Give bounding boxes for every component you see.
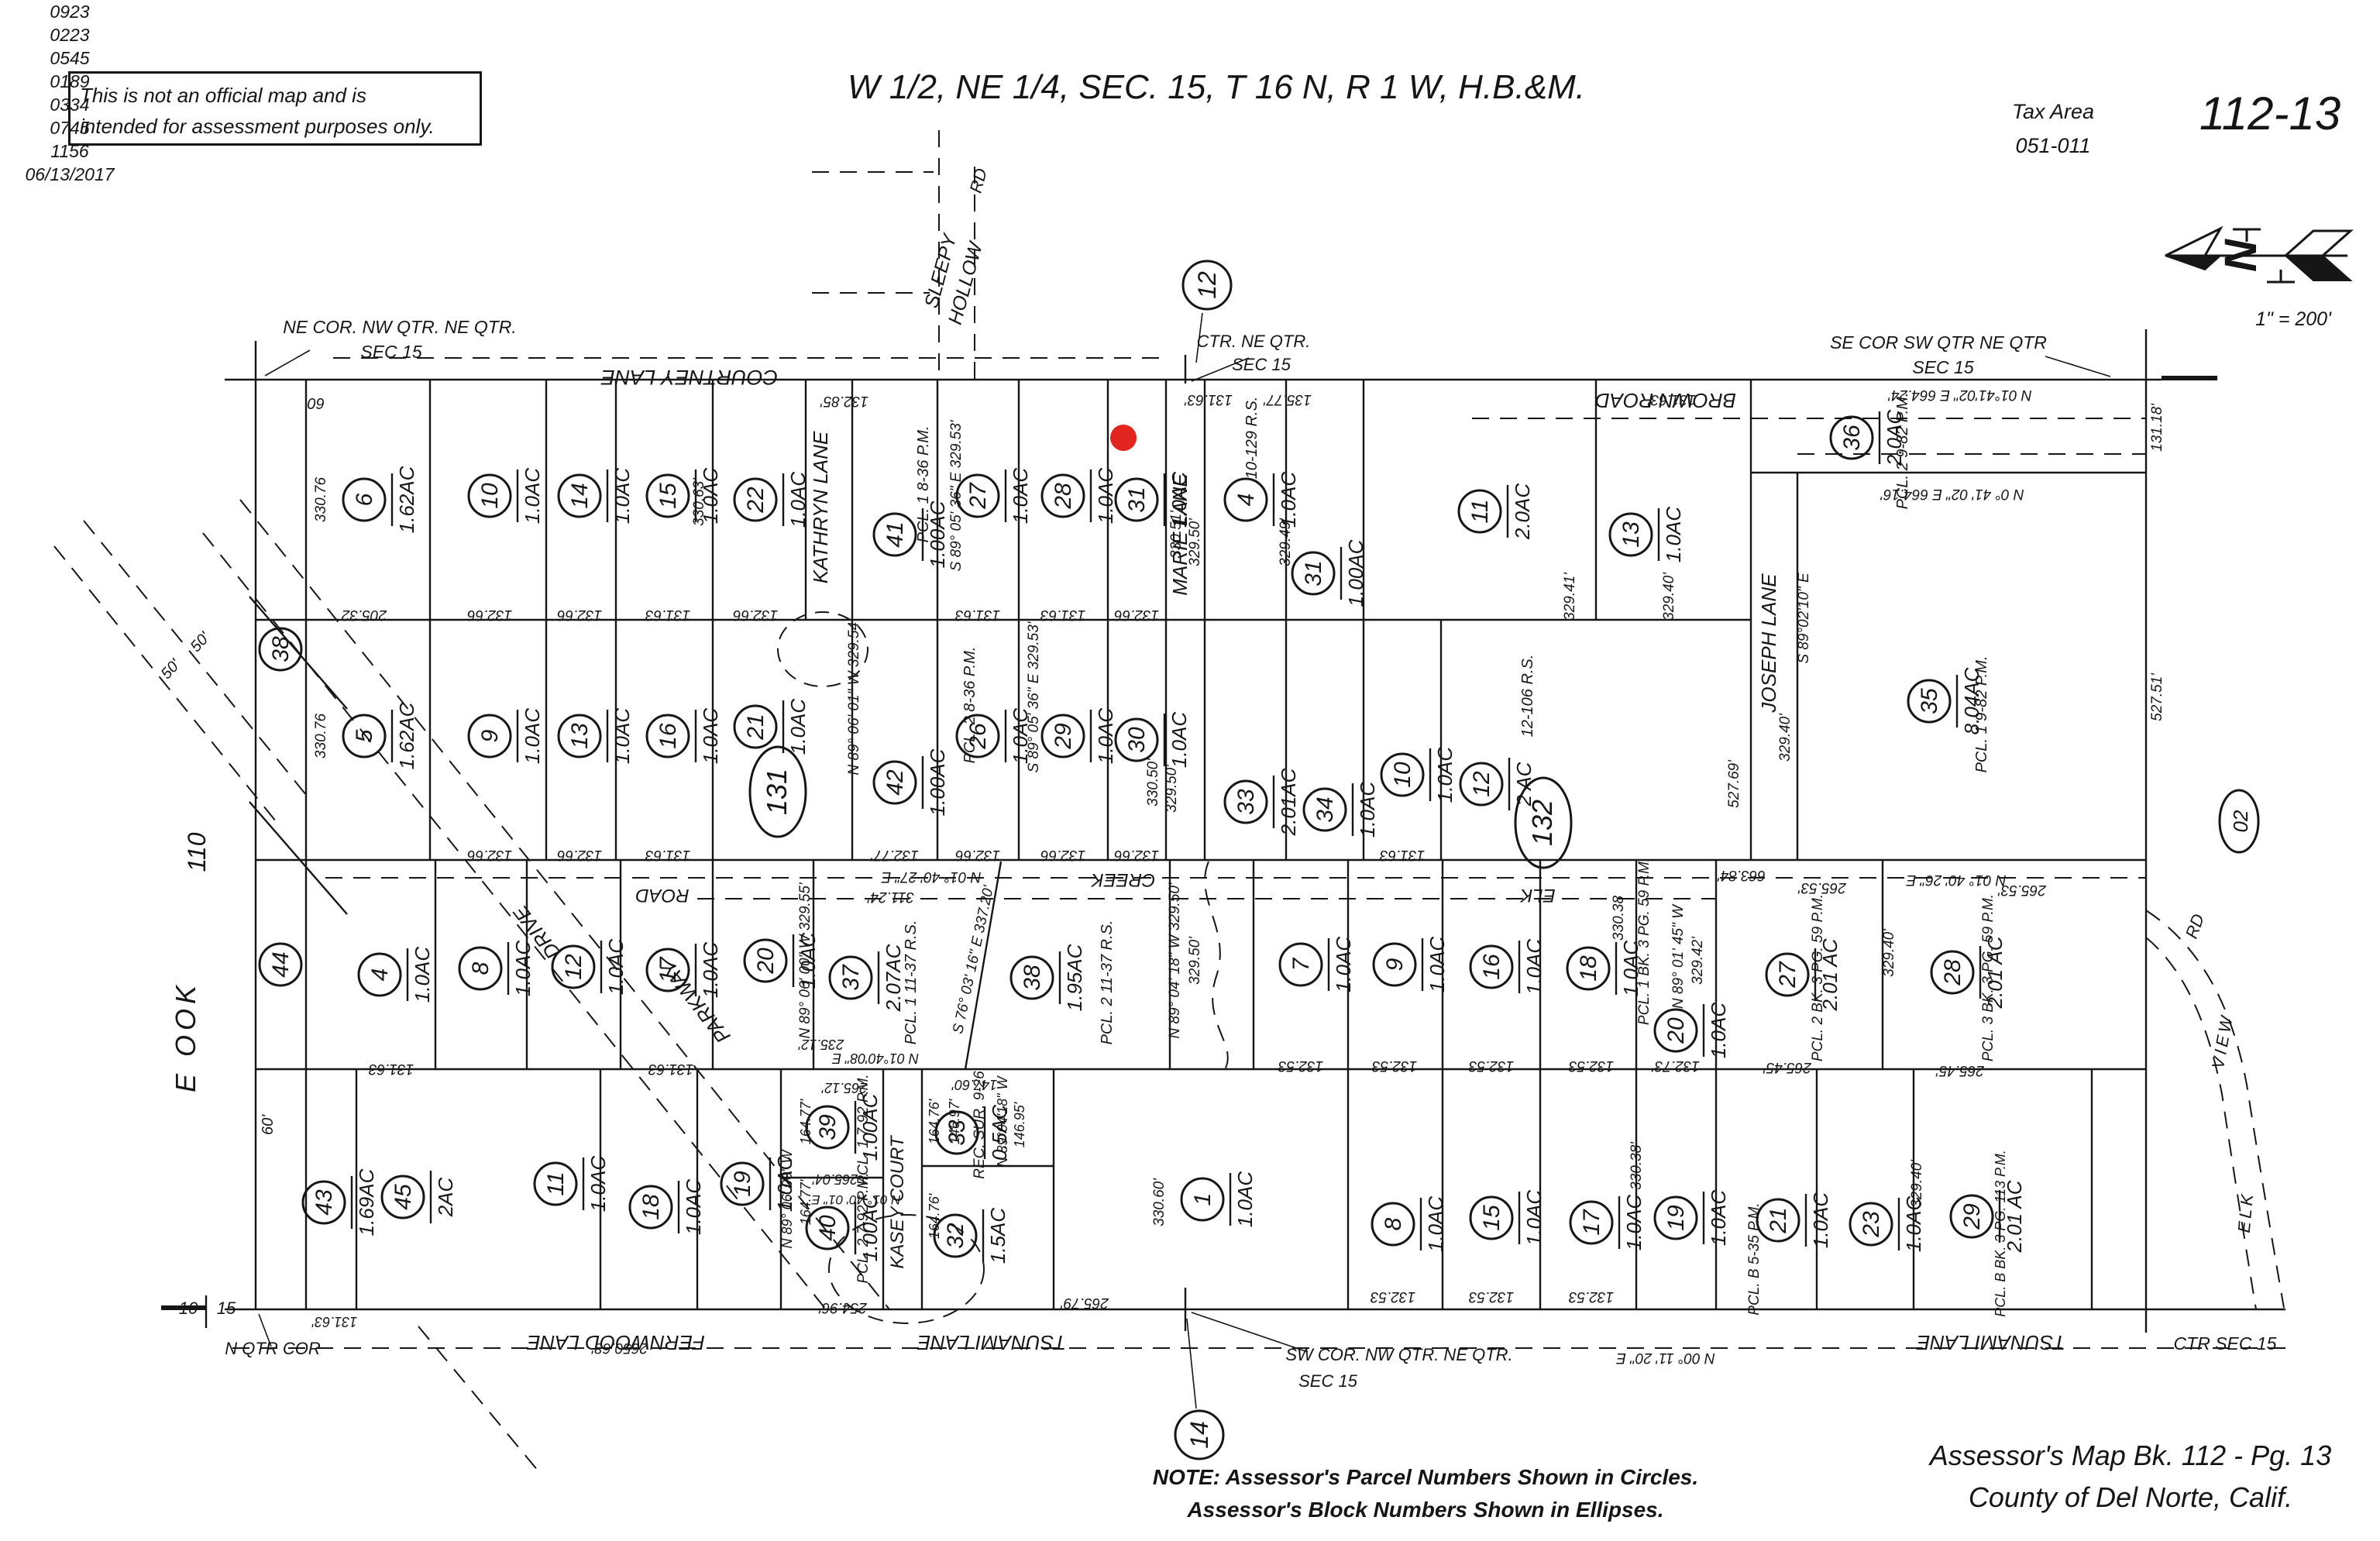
map-label: 265.45'	[1935, 1062, 1985, 1078]
map-label: 329.50'	[1164, 764, 1180, 813]
parcel-acreage: 2.0AC	[1883, 410, 1906, 466]
map-label: 132.77'	[870, 847, 919, 863]
map-label: 10	[179, 1298, 198, 1318]
map-label: ELK	[1519, 885, 1555, 906]
map-label: 132.66	[467, 607, 513, 623]
parcel-number: 33	[944, 1120, 970, 1146]
parcel-number: 37	[838, 964, 864, 991]
map-label: 132.53	[1569, 1058, 1615, 1074]
map-label: 131.63'	[311, 1314, 357, 1329]
parcel-acreage: 1.00AC	[1344, 539, 1367, 607]
map-label: 329.40'	[1777, 713, 1794, 762]
parcel-number: 15	[655, 483, 681, 509]
parcel-acreage: 1.0AC	[511, 941, 535, 996]
parcel-markers: 61.62AC101.0AC141.0AC151.0AC221.0AC411.0…	[260, 410, 2026, 1264]
parcel-marker: 452AC	[382, 1171, 457, 1223]
map-label: 131.63	[645, 847, 691, 863]
parcel-number: 16	[1479, 954, 1505, 980]
map-label: SE COR SW QTR NE QTR	[1830, 332, 2047, 353]
parcel-acreage: 1.0AC	[1424, 1196, 1447, 1252]
parcel-number: 44	[268, 951, 294, 977]
parcel-acreage: 1.0AC	[604, 939, 628, 995]
parcel-acreage: 1.0AC	[1433, 747, 1457, 803]
parcel-number: 28	[1940, 959, 1966, 986]
parcel-acreage: 1.0AC	[786, 472, 810, 528]
parcel-marker: 121.0AC	[552, 939, 628, 995]
parcel-acreage: 1.0AC	[699, 942, 722, 998]
parcel-number: 20	[1663, 1017, 1689, 1044]
parcel-number: 6	[352, 493, 377, 506]
map-label: 265.45'	[1763, 1059, 1812, 1075]
map-label: 131.63'	[1647, 391, 1696, 408]
parcel-marker: 291.0AC	[1042, 708, 1117, 764]
map-label: 132.53	[1469, 1058, 1515, 1074]
map-label: PCL. B 5-35 P.M.	[1746, 1202, 1763, 1315]
parcel-acreage: 1.0AC	[1009, 708, 1032, 764]
parcel-marker: 101.0AC	[1381, 747, 1457, 803]
parcel-acreage: 1.0AC	[610, 708, 634, 764]
parcel-acreage: 2.0AC	[1511, 483, 1534, 540]
click-marker	[1110, 425, 1137, 451]
parcel-acreage: 2AC	[434, 1177, 457, 1217]
parcel-marker: 321.5AC	[934, 1208, 1009, 1264]
map-label: 131.63	[369, 1061, 414, 1077]
parcel-acreage: 1.0AC	[411, 947, 434, 1003]
map-label: N 00° 11' 20" E	[1616, 1350, 1715, 1366]
map-label: 60'	[260, 1114, 277, 1135]
parcel-number: 29	[1959, 1203, 1985, 1230]
map-label: S 89°02'10" E	[1796, 573, 1812, 664]
parcel-acreage: 1.5AC	[986, 1208, 1009, 1264]
parcel-number: 8	[1381, 1217, 1406, 1230]
parcel-marker: 261.0AC	[957, 708, 1032, 764]
parcel-acreage: 1.0AC	[699, 468, 722, 524]
parcel-marker: 141.0AC	[559, 468, 634, 524]
parcel-marker: 51.62AC	[343, 702, 418, 769]
map-label: VIEW	[2208, 1012, 2237, 1070]
parcel-marker: 341.0AC	[1304, 782, 1379, 838]
map-label: RD	[2182, 911, 2208, 941]
map-label: RD	[966, 166, 991, 194]
parcel-number: 8	[468, 961, 494, 975]
adjacent-page-number: 14	[1185, 1421, 1213, 1449]
map-label: 132.66	[1114, 607, 1160, 623]
map-label: 265.53'	[1797, 879, 1847, 896]
parcel-marker: 111.0AC	[535, 1156, 610, 1212]
map-label: 132.66	[1114, 847, 1160, 863]
parcel-acreage: 1.0AC	[1168, 712, 1191, 768]
map-label: 132.53	[1469, 1288, 1515, 1305]
map-label: E OOK	[170, 981, 201, 1092]
map-label: 330.76	[313, 477, 329, 523]
map-label: 330.38	[1611, 896, 1627, 941]
map-label: 135.77'	[1263, 391, 1312, 408]
parcel-number: 9	[477, 729, 503, 742]
parcel-acreage: 1.0AC	[586, 1156, 610, 1212]
map-label: 132.66	[557, 607, 603, 623]
parcel-number: 36	[1839, 425, 1865, 451]
parcel-acreage: 1.62AC	[395, 466, 418, 533]
map-label: 132.73'	[1651, 1058, 1700, 1074]
parcel-acreage: 1.0AC	[1902, 1196, 1925, 1252]
parcel-marker: 171.0AC	[1570, 1195, 1646, 1250]
map-label: 265.53'	[1997, 882, 2047, 898]
parcel-acreage: 1.0AC	[1094, 468, 1117, 524]
parcel-acreage: 1.0AC	[521, 468, 544, 524]
parcel-acreage: 1.0AC	[1356, 782, 1379, 838]
parcel-number: 19	[1663, 1205, 1689, 1231]
parcel-acreage: 1.0AC	[1233, 1171, 1257, 1227]
parcel-marker: 211.0AC	[1757, 1192, 1832, 1248]
parcel-acreage: 1.00AC	[858, 1194, 882, 1261]
map-label: 132.53	[1372, 1058, 1418, 1074]
parcel-number: 21	[1766, 1207, 1791, 1233]
parcel-marker: 41.0AC	[359, 947, 434, 1003]
parcel-acreage: 1.69AC	[355, 1168, 378, 1236]
map-label: ROAD	[635, 885, 689, 906]
parcel-acreage: 1.0AC	[1009, 468, 1032, 524]
parcel-number: 20	[753, 948, 779, 975]
block-number: 131	[761, 769, 793, 815]
map-label: 131.63'	[1184, 391, 1233, 408]
map-label: 146.95'	[1012, 1102, 1027, 1147]
adjacent-page-ref: 12	[1183, 261, 1231, 309]
map-label: 132.53	[1569, 1288, 1615, 1305]
parcel-marker: 201.0AC	[1655, 1003, 1730, 1058]
map-label: 50'	[187, 628, 215, 655]
parcel-number: 7	[1288, 957, 1314, 971]
map-label: KATHRYN LANE	[809, 431, 832, 583]
map-label: N 89° 04' 18" W 329.50'	[1167, 882, 1183, 1039]
map-label: 330.38'	[1629, 1141, 1645, 1190]
map-label: 329.50'	[1187, 936, 1203, 985]
parcel-marker: 372.07AC	[830, 944, 905, 1012]
parcel-number: 42	[882, 769, 908, 796]
parcel-number: 16	[655, 723, 681, 749]
parcel-number: 38	[1020, 965, 1045, 991]
map-label: 329.41'	[1562, 572, 1578, 621]
parcel-marker: 201.0AC	[745, 933, 820, 989]
parcel-acreage: 1.0AC	[786, 699, 810, 755]
parcel-number: 10	[477, 483, 503, 509]
map-label: PCL. 2 11-37 R.S.	[1099, 920, 1116, 1045]
parcel-number: 10	[1390, 762, 1415, 788]
map-label: PCL. 1 11-37 R.S.	[903, 920, 920, 1045]
assessor-map-page: This is not an official map and is inten…	[0, 0, 2380, 1541]
map-label: N 89° 01' 45" W	[1670, 903, 1687, 1009]
parcel-acreage: 1.0AC	[1094, 708, 1117, 764]
parcel-marker: 161.0AC	[647, 708, 722, 764]
parcel-number: 41	[882, 521, 908, 547]
parcel-marker: 181.0AC	[630, 1179, 705, 1235]
map-label: 235.12'	[798, 1037, 844, 1052]
parcel-marker: 71.0AC	[1280, 937, 1355, 992]
parcel-number: 32	[943, 1223, 968, 1249]
parcel-acreage: 1.0AC	[1619, 941, 1642, 996]
map-label: SW COR. NW QTR. NE QTR.	[1285, 1345, 1512, 1364]
parcel-marker: 281.0AC	[1042, 468, 1117, 524]
map-label: S 76° 03' 16" E 337.20'	[950, 883, 997, 1035]
parcel-marker: 381.95AC	[1011, 944, 1086, 1011]
block-ellipse: 132	[1515, 778, 1571, 868]
parcel-number: 4	[367, 968, 393, 982]
parcel-marker: 231.0AC	[1850, 1196, 1925, 1252]
adjacent-page-ref: 14	[1175, 1411, 1223, 1459]
parcel-acreage: 1.0AC	[1622, 1195, 1646, 1250]
parcel-number: 1	[1190, 1193, 1216, 1206]
map-label: 330.50'	[1145, 758, 1161, 807]
parcel-marker: 282.01 AC	[1931, 936, 2007, 1009]
parcel-acreage: 1.0AC	[521, 708, 544, 764]
parcel-marker: 61.62AC	[343, 466, 418, 533]
parcel-marker: 151.0AC	[647, 468, 722, 524]
map-label: 131.63	[955, 607, 1001, 623]
parcel-acreage: 1.0AC	[1809, 1192, 1832, 1248]
parcel-acreage: 8.04AC	[1960, 667, 1983, 734]
map-label: 132.66	[733, 607, 779, 623]
parcel-marker: 101.0AC	[469, 468, 544, 524]
parcel-number: 28	[1051, 483, 1076, 510]
map-label: CTR. NE QTR.	[1197, 332, 1311, 351]
parcel-number: 35	[1917, 688, 1942, 714]
parcel-marker: 11.0AC	[1181, 1171, 1257, 1227]
parcel-number: 38	[268, 636, 294, 662]
map-label: CTR SEC 15	[2174, 1333, 2277, 1354]
map-label: 15	[217, 1298, 236, 1318]
parcel-acreage: 1.00AC	[926, 748, 949, 816]
map-label: 330.60'	[1151, 1178, 1168, 1226]
parcel-acreage: 1.0AC	[796, 933, 820, 989]
parcel-number: 13	[1618, 521, 1644, 548]
parcel-number: 17	[1579, 1209, 1604, 1236]
parcel-number: 22	[743, 487, 769, 514]
map-label: N QTR COR	[225, 1339, 321, 1358]
map-label: 164.77'	[798, 1179, 813, 1225]
parcel-marker: 81.0AC	[1372, 1196, 1447, 1252]
parcel-acreage: 2.07AC	[882, 944, 905, 1012]
parcel-number: 27	[1775, 961, 1800, 989]
parcel-number: 13	[567, 723, 593, 749]
map-label: TSUNAMI LANE	[1916, 1331, 2065, 1354]
parcel-acreage: 1.62AC	[395, 702, 418, 769]
map-label: 131.63	[645, 607, 691, 623]
map-label: 132.53	[1371, 1288, 1416, 1305]
parcel-acreage: 1.0AC	[1332, 937, 1355, 992]
parcel-acreage: 1.0AC	[773, 1156, 796, 1212]
parcel-acreage: 1.00AC	[858, 1093, 882, 1161]
map-label: 132.66	[955, 847, 1001, 863]
parcel-number: 31	[1301, 560, 1326, 586]
map-label: 147.60'	[951, 1077, 997, 1092]
block-number: 02	[2229, 810, 2252, 832]
map-label: SEC 15	[1298, 1371, 1358, 1391]
parcel-acreage: 1.0AC	[1277, 472, 1300, 528]
parcel-acreage: 1.0AC	[1522, 1190, 1546, 1246]
map-label: 132.66	[557, 847, 603, 863]
parcel-marker: 161.0AC	[1470, 939, 1546, 995]
map-label: 131.63	[1040, 607, 1086, 623]
parcel-marker: 292.01 AC	[1951, 1180, 2026, 1253]
north-arrow: N	[2165, 229, 2351, 282]
parcel-marker: 91.0AC	[469, 708, 544, 764]
parcel-marker: 44	[260, 944, 301, 985]
parcel-acreage: 1.0AC	[1426, 937, 1449, 992]
parcel-marker: 211.0AC	[734, 699, 810, 755]
parcel-marker: 221.0AC	[734, 472, 810, 528]
parcel-acreage: 1.0AC	[1662, 507, 1685, 562]
parcel-number: 26	[965, 723, 991, 750]
parcel-marker: 191.0AC	[1655, 1190, 1730, 1246]
map-label: 12-106 R.S.	[1519, 655, 1536, 738]
parcel-marker: 81.0AC	[459, 941, 535, 996]
map-label: 2650.68'	[590, 1340, 648, 1356]
map-label: 132.53	[1278, 1058, 1324, 1074]
parcel-acreage: 0.5AC	[988, 1105, 1011, 1161]
parcel-number: 45	[390, 1184, 416, 1210]
parcel-number: 29	[1051, 723, 1076, 750]
parcel-marker: 431.69AC	[303, 1168, 378, 1236]
map-label: 164.77'	[798, 1099, 813, 1144]
map-label: 663.84'	[1717, 867, 1766, 883]
parcel-acreage: 1.0AC	[1707, 1190, 1730, 1246]
map-label: 329.40'	[1881, 928, 1897, 977]
parcel-acreage: 2.01 AC	[1983, 936, 2007, 1009]
map-label: 60	[308, 394, 325, 411]
parcel-marker: 271.0AC	[957, 468, 1032, 524]
block-ellipse: 131	[750, 747, 806, 837]
map-label: 205.32	[342, 607, 388, 623]
parcel-marker: 311.00AC	[1292, 539, 1367, 607]
adjacent-page-number: 12	[1193, 271, 1221, 299]
parcel-number: 21	[743, 714, 769, 740]
map-label: ELK	[2234, 1191, 2258, 1234]
parcel-marker: 391.00AC	[807, 1093, 882, 1161]
parcel-acreage: 2.01 AC	[2003, 1180, 2026, 1253]
parcel-number: 18	[1576, 955, 1601, 982]
block-ellipse: 02	[2220, 790, 2258, 852]
map-label: 131.18'	[2149, 403, 2165, 452]
map-label: 329.42'	[1690, 936, 1706, 985]
parcel-number: 11	[543, 1171, 569, 1195]
map-label: 131.63	[648, 1061, 694, 1077]
parcel-acreage: 1.0AC	[1707, 1003, 1730, 1058]
parcel-acreage: 1.0AC	[699, 708, 722, 764]
parcel-number: 31	[1124, 487, 1150, 512]
parcel-number: 43	[311, 1189, 337, 1216]
parcel-acreage: 1.0AC	[1168, 472, 1191, 528]
map-label: 311.24'	[866, 889, 914, 905]
parcel-marker: 358.04AC	[1908, 667, 1983, 734]
map-label: NE COR. NW QTR. NE QTR.	[283, 317, 517, 337]
map-label: 131.63	[1380, 847, 1426, 863]
map-label: COURTNEY LANE	[600, 366, 779, 389]
map-label: 10-129 R.S.	[1243, 397, 1261, 480]
map-label: 265.04'	[812, 1171, 858, 1187]
parcel-acreage: 2.01AC	[1277, 768, 1300, 836]
block-number: 132	[1526, 800, 1558, 846]
parcel-number: 27	[965, 482, 991, 510]
map-label: 265.79'	[1060, 1295, 1109, 1311]
parcel-marker: 122 AC	[1460, 758, 1536, 810]
parcel-number: 17	[655, 956, 681, 983]
parcel-number: 9	[1382, 958, 1408, 971]
map-label: SEC 15	[360, 342, 421, 362]
parcel-acreage: 1.00AC	[926, 500, 949, 568]
parcel-acreage: 1.0AC	[1522, 939, 1546, 995]
parcel-marker: 41.0AC	[1225, 472, 1300, 528]
parcel-acreage: 1.95AC	[1063, 944, 1086, 1011]
map-label: 527.51'	[2149, 672, 2165, 721]
parcel-marker: 131.0AC	[1610, 507, 1685, 562]
map-label: 527.69'	[1726, 759, 1742, 808]
parcel-marker: 191.0AC	[721, 1156, 796, 1212]
map-label: N 01° 40' 27" E	[881, 869, 981, 885]
parcel-number: 18	[638, 1194, 664, 1220]
map-label: SEC 15	[1912, 357, 1973, 377]
parcel-number: 34	[1312, 796, 1338, 822]
map-label: CREEK	[1091, 869, 1156, 890]
parcel-number: 33	[1233, 789, 1259, 815]
parcel-number: 15	[1479, 1205, 1505, 1231]
map-label: 132.85'	[820, 393, 868, 409]
parcel-number: 19	[730, 1171, 755, 1197]
parcel-number: 5	[352, 729, 377, 742]
map-label: 110	[183, 832, 211, 872]
parcel-marker: 411.00AC	[874, 500, 949, 568]
map-label: JOSEPH LANE	[1757, 573, 1780, 714]
parcel-number: 14	[567, 483, 593, 508]
map-label: 132.66	[467, 847, 513, 863]
map-label: 330.76	[313, 714, 329, 759]
map-label: N 01°40'08" E	[831, 1051, 919, 1066]
parcel-acreage: 1.0AC	[610, 468, 634, 524]
parcel-number: 11	[1467, 499, 1493, 523]
map-label: SEC 15	[1232, 355, 1291, 374]
parcel-marker: 91.0AC	[1374, 937, 1449, 992]
parcel-acreage: 1.0AC	[682, 1179, 705, 1235]
parcel-marker: 272.01 AC	[1766, 938, 1842, 1011]
parcel-marker: 112.0AC	[1459, 483, 1534, 540]
map-label: N 01° 40' 26" E	[1906, 872, 2006, 888]
parcel-marker: 311.0AC	[1116, 472, 1191, 528]
parcel-acreage: 2.01 AC	[1818, 938, 1842, 1011]
parcel-marker: 151.0AC	[1470, 1190, 1546, 1246]
parcel-marker: 181.0AC	[1567, 941, 1642, 996]
parcel-marker: 332.01AC	[1225, 768, 1300, 836]
map-label: 254.96'	[818, 1299, 868, 1316]
parcel-marker: 421.00AC	[874, 748, 949, 816]
parcel-number: 12	[561, 954, 586, 980]
parcel-number: 30	[1124, 727, 1150, 753]
parcel-number: 39	[815, 1114, 841, 1140]
parcel-number: 12	[1469, 771, 1494, 797]
map-label: TSUNAMI LANE	[917, 1331, 1066, 1354]
assessor-map-canvas: N COURTNEY LANESLEEPYHOLLOWRDKATHRYN LAN…	[0, 0, 2380, 1541]
map-label: 132.66	[1040, 847, 1086, 863]
map-label: N 89° 06' 01" W 329.54'	[846, 618, 862, 776]
parcel-number: 23	[1859, 1211, 1884, 1238]
north-letter: N	[2216, 239, 2266, 272]
map-label: 329.40'	[1661, 572, 1677, 621]
parcel-number: 40	[815, 1215, 841, 1241]
parcel-marker: 131.0AC	[559, 708, 634, 764]
parcel-number: 4	[1233, 494, 1259, 507]
